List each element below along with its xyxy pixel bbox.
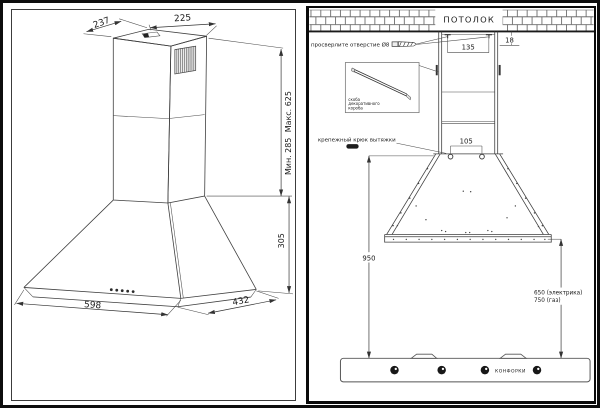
vent-grille-icon [175, 46, 196, 74]
fixing-screw-icon [445, 35, 451, 39]
dimension-stove-clearance: 650 (электрика) 750 (газ) [532, 239, 588, 358]
dimension-wall-offset: 18 [500, 31, 520, 45]
dim-label: 432 [232, 295, 251, 308]
dimension-chimney-depth: 237 [83, 16, 147, 37]
ceiling-brick-band: ПОТОЛОК [309, 9, 594, 31]
fixing-screw-icon [486, 35, 492, 39]
bracket-inset: скоба декоративного короба [345, 63, 438, 113]
left-panel-isometric-view: 237 225 Макс. 625 Мин. 285 305 [11, 9, 296, 401]
hood-pyramid [24, 196, 256, 307]
hook-note: крепежный крюк вытяжки [318, 137, 446, 154]
knob-icon [533, 366, 541, 374]
hook-note-label: крепежный крюк вытяжки [318, 137, 396, 144]
dimension-mount-height: 950 [358, 156, 434, 358]
dim-label: Мин. 285 [284, 138, 293, 175]
installation-drawing: ПОТОЛОК 135 18 [309, 8, 594, 402]
dimension-hood-height: 305 [258, 197, 293, 294]
knob-icon [437, 366, 445, 374]
duct-bracket-mark [436, 65, 438, 75]
ceiling-label: ПОТОЛОК [443, 15, 495, 25]
button-icon [110, 288, 113, 291]
control-buttons [110, 288, 135, 293]
duct-bracket-mark [499, 65, 501, 75]
dimension-chimney-width: 225 [149, 13, 217, 35]
dim-label: 598 [84, 300, 102, 311]
button-icon [121, 289, 124, 292]
outlet-mark [143, 33, 149, 37]
hood-front-view [384, 154, 552, 242]
burner-cap-icon [411, 354, 437, 358]
dim-label: 950 [362, 254, 375, 262]
dim-label: 105 [460, 138, 473, 146]
rivet-dots [392, 168, 545, 240]
drawing-sheet: 237 225 Макс. 625 Мин. 285 305 [0, 0, 600, 408]
dim-label: 135 [462, 44, 475, 52]
hook-icon [346, 144, 358, 149]
dim-label: 750 (газ) [534, 298, 561, 304]
bracket-caption-line: короба [348, 106, 363, 111]
stove: КОНФОРКИ [340, 354, 590, 382]
dim-label: 305 [277, 233, 286, 248]
isometric-drawing: 237 225 Макс. 625 Мин. 285 305 [12, 10, 295, 400]
dimension-hood-depth: 432 [178, 291, 279, 315]
button-icon [115, 289, 118, 292]
dimension-height-range: Макс. 625 Мин. 285 [207, 38, 293, 196]
button-icon [132, 290, 135, 293]
knob-icon [481, 366, 489, 374]
burners-label: КОНФОРКИ [495, 368, 526, 374]
right-panel-installation-view: ПОТОЛОК 135 18 [306, 6, 596, 404]
knob-icon [390, 366, 398, 374]
button-icon [126, 290, 129, 293]
dim-label: 650 (электрика) [534, 290, 582, 296]
dowel-icon [392, 42, 417, 47]
burner-cap-icon [500, 354, 526, 358]
dim-label: 237 [92, 16, 111, 31]
dim-label: 18 [505, 37, 514, 45]
dimension-hood-width: 598 [14, 290, 180, 316]
dimension-hook-spacing: 105 [448, 137, 484, 159]
dim-label: 225 [174, 13, 192, 24]
mounting-hook-icon [448, 154, 453, 159]
mounting-hook-icon [480, 154, 485, 159]
dim-label: Макс. 625 [284, 91, 293, 132]
drill-note-label: просверлите отверстие Ø8 [311, 42, 390, 49]
